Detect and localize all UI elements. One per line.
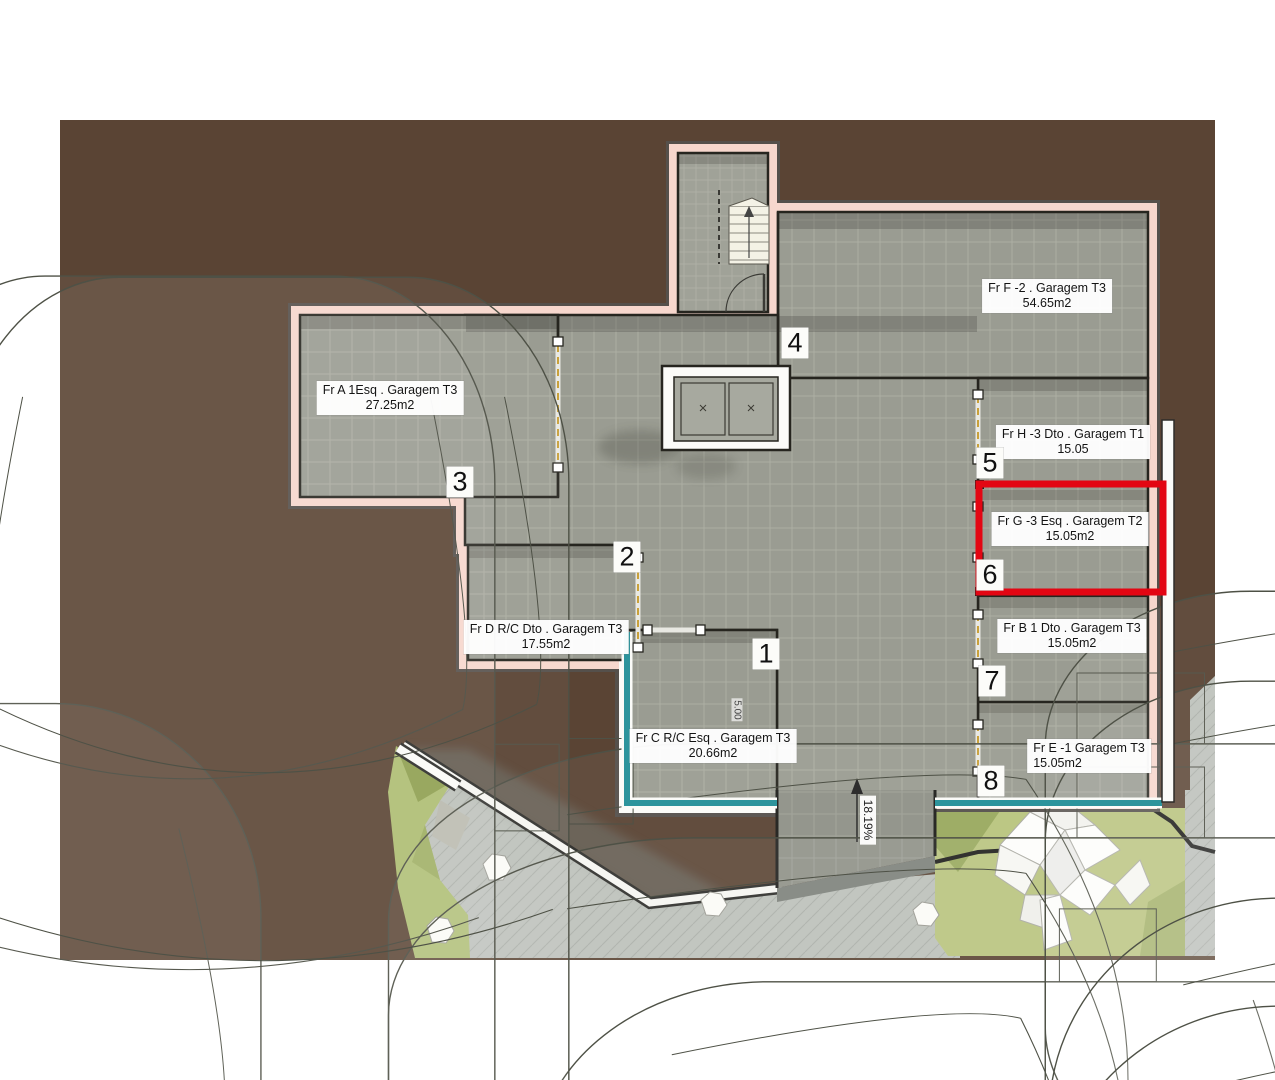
space-name: Fr B 1 Dto . Garagem T3 [1003,621,1140,635]
space-label-fr-g: Fr G -3 Esq . Garagem T2 15.05m2 [992,512,1149,546]
space-area: 15.05m2 [1003,636,1140,651]
space-area: 15.05m2 [1033,756,1145,771]
space-label-fr-e: Fr E -1 Garagem T3 15.05m2 [1027,739,1151,773]
floor-plan-page: Fr C R/C Esq . Garagem T3 20.66m2 Fr D R… [0,0,1275,1080]
space-area: 15.05m2 [998,529,1143,544]
space-label-fr-d: Fr D R/C Dto . Garagem T3 17.55m2 [464,620,629,654]
dimension-label: 5.00 [732,698,743,721]
right-retaining-wall [1162,420,1174,802]
space-label-fr-f: Fr F -2 . Garagem T3 54.65m2 [982,279,1112,313]
space-label-fr-a: Fr A 1Esq . Garagem T3 27.25m2 [317,381,464,415]
space-name: Fr H -3 Dto . Garagem T1 [1002,427,1144,441]
space-name: Fr G -3 Esq . Garagem T2 [998,514,1143,528]
space-marker-3: 3 [446,467,473,498]
space-name: Fr E -1 Garagem T3 [1033,741,1145,755]
ramp-slope-label: 18.19% [860,796,876,845]
space-marker-4: 4 [781,328,808,359]
space-label-fr-b: Fr B 1 Dto . Garagem T3 15.05m2 [997,619,1146,653]
elevator [662,366,790,450]
space-area: 20.66m2 [636,746,791,761]
space-name: Fr F -2 . Garagem T3 [988,281,1106,295]
space-marker-2: 2 [613,542,640,573]
space-label-fr-h: Fr H -3 Dto . Garagem T1 15.05 [996,425,1150,459]
space-name: Fr A 1Esq . Garagem T3 [323,383,458,397]
space-area: 27.25m2 [323,398,458,413]
space-name: Fr D R/C Dto . Garagem T3 [470,622,623,636]
space-marker-1: 1 [752,639,779,670]
space-marker-7: 7 [978,666,1005,697]
space-marker-8: 8 [977,766,1004,797]
space-area: 17.55m2 [470,637,623,652]
space-label-fr-c: Fr C R/C Esq . Garagem T3 20.66m2 [630,729,797,763]
space-marker-5: 5 [976,448,1003,479]
space-area: 54.65m2 [988,296,1106,311]
space-marker-6: 6 [976,560,1003,591]
space-area: 15.05 [1002,442,1144,457]
space-name: Fr C R/C Esq . Garagem T3 [636,731,791,745]
